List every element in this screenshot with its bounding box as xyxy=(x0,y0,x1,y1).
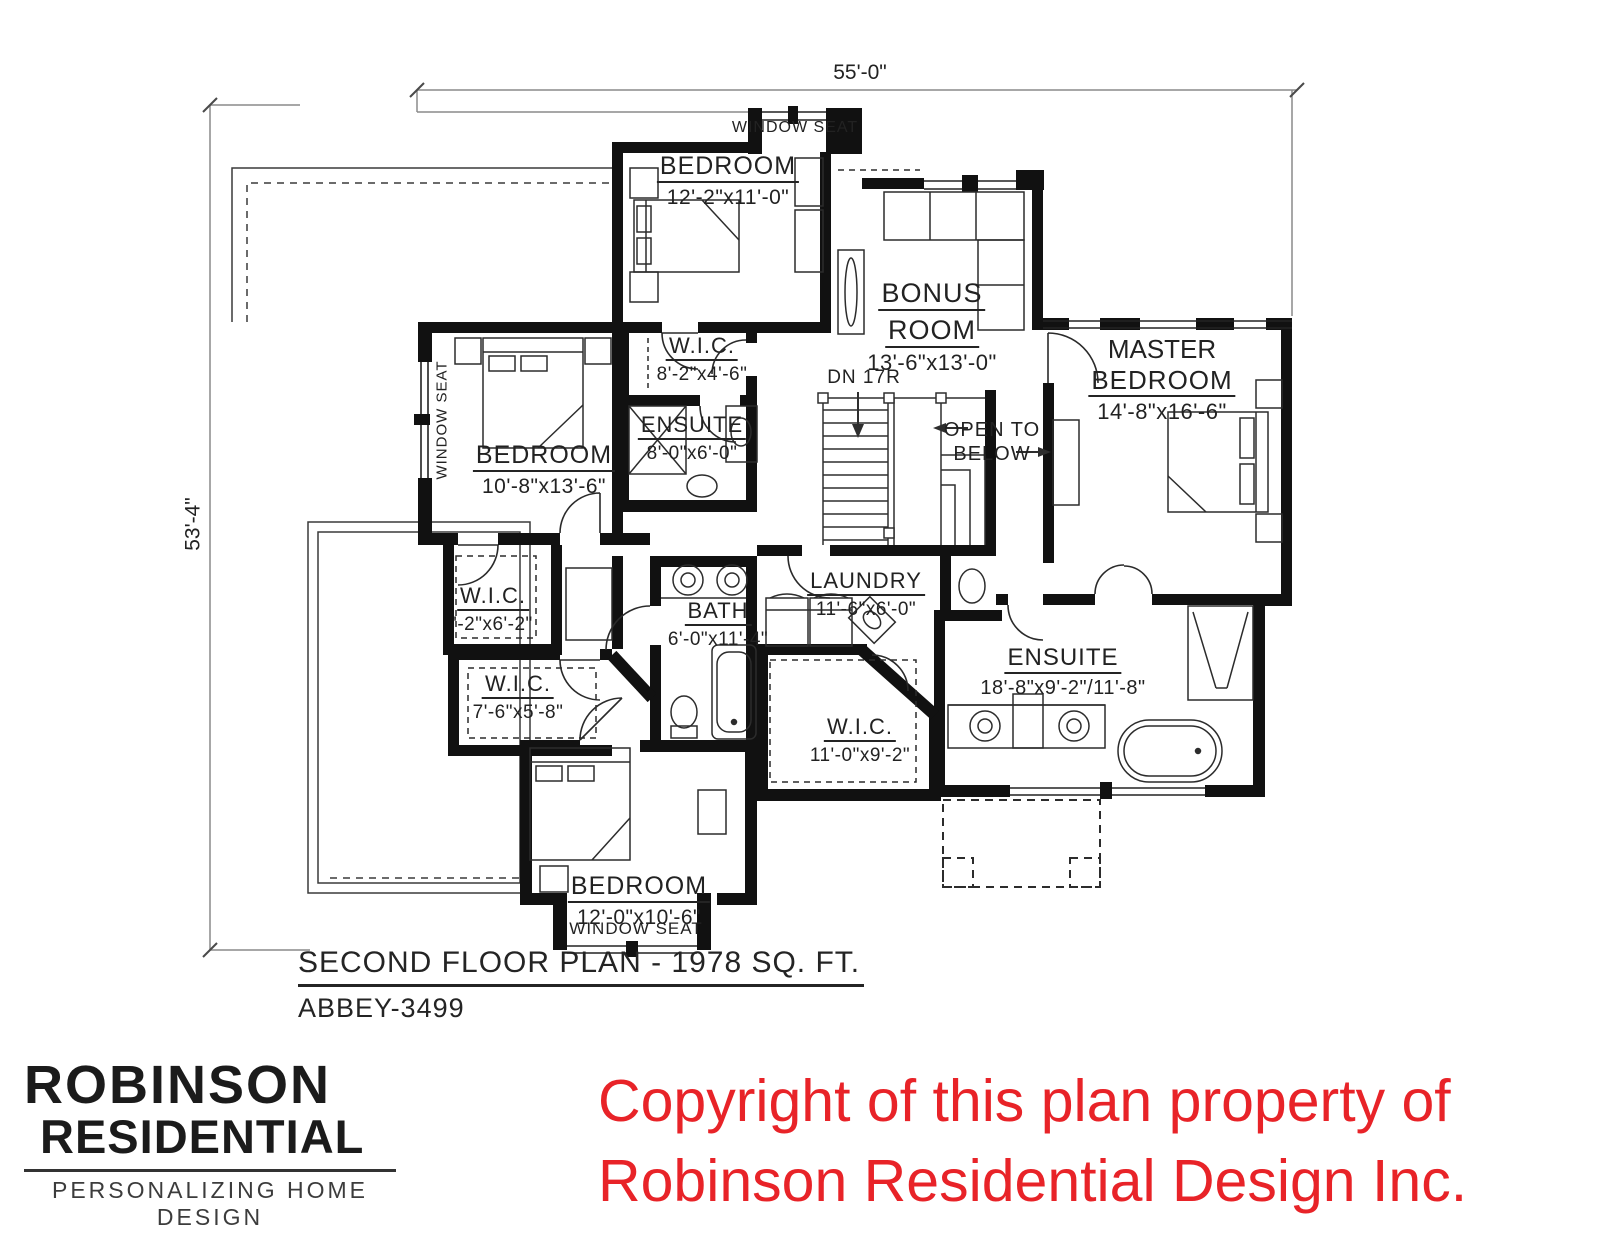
windows xyxy=(421,112,1292,953)
toilet-small-ensuite xyxy=(687,475,717,497)
bed-bottom-bedroom xyxy=(530,748,726,892)
ensuite-shower xyxy=(1188,606,1253,700)
room-label-bedroom-left: BEDROOM10'-8"x13'-6" xyxy=(473,443,615,498)
room-label-wic-upper: W.I.C.8'-2"x4'-6" xyxy=(657,335,748,384)
robinson-residential-logo: ROBINSON RESIDENTIAL PERSONALIZING HOME … xyxy=(24,1058,396,1236)
freestanding-tub xyxy=(1118,720,1222,782)
window-seat-top-label: WINDOW SEAT xyxy=(732,120,858,136)
window-seat-left-label: WINDOW SEAT xyxy=(435,360,450,479)
dimension-height-label: 53'-4" xyxy=(183,497,204,551)
logo-line1: ROBINSON xyxy=(24,1058,396,1112)
room-label-bedroom-top: BEDROOM12'-2"x11'-0" xyxy=(657,154,799,209)
stairs-dn-label: DN 17R xyxy=(827,368,901,387)
bed-left-bedroom xyxy=(455,338,611,448)
logo-line2: RESIDENTIAL xyxy=(40,1112,396,1163)
room-label-laundry: LAUNDRY11'-6"x6'-0" xyxy=(807,570,925,619)
room-label-bath: BATH6'-0"x11'-4" xyxy=(668,600,768,649)
copyright-notice: Copyright of this plan property of Robin… xyxy=(598,1062,1467,1221)
copyright-line1: Copyright of this plan property of xyxy=(598,1062,1467,1142)
title-block: SECOND FLOOR PLAN - 1978 SQ. FT. ABBEY-3… xyxy=(298,946,864,1024)
sliding-door xyxy=(838,250,864,334)
logo-tagline: PERSONALIZING HOME DESIGN xyxy=(24,1177,396,1231)
bath-vanity xyxy=(661,565,747,598)
floor-plan-drawing xyxy=(0,0,1600,1236)
room-label-wic-master: W.I.C.11'-0"x9'-2" xyxy=(810,716,910,765)
room-label-bedroom-bottom: BEDROOM12'-0"x10'-6" xyxy=(568,874,710,929)
room-label-wic-left: W.I.C.'-2"x6'-2" xyxy=(453,585,533,634)
room-label-bonus-room: BONUSROOM13'-6"x13'-0" xyxy=(867,280,997,375)
logo-divider-top xyxy=(24,1169,396,1172)
furniture xyxy=(455,158,1282,892)
walls xyxy=(418,108,1292,950)
floor-plan-sheet: 55'-0" 53'-4" WINDOW SEAT WINDOW SEAT WI… xyxy=(0,0,1600,1236)
copyright-line2: Robinson Residential Design Inc. xyxy=(598,1142,1467,1222)
open-to-below-label-line2: BELOW xyxy=(953,444,1030,464)
stairs xyxy=(818,393,985,545)
toilet-hall xyxy=(959,569,985,603)
ensuite-vanity xyxy=(948,694,1105,748)
room-label-wic-lower-left: W.I.C.7'-6"x5'-8" xyxy=(473,673,564,722)
room-label-ensuite-small: ENSUITE8'-0"x6'-0" xyxy=(638,414,746,463)
toilet-bath xyxy=(671,696,697,738)
stairs-down-arrow xyxy=(852,392,864,438)
room-label-master-bedroom: MASTERBEDROOM14'-8"x16'-6" xyxy=(1088,336,1235,423)
plan-number: ABBEY-3499 xyxy=(298,993,864,1024)
open-to-below-label-line1: OPEN TO xyxy=(944,420,1040,440)
dimension-width-label: 55'-0" xyxy=(833,62,887,83)
room-label-ensuite-master: ENSUITE18'-8"x9'-2"/11'-8" xyxy=(980,646,1145,699)
porch-outline xyxy=(943,800,1100,887)
linen-closet xyxy=(566,568,612,640)
plan-title: SECOND FLOOR PLAN - 1978 SQ. FT. xyxy=(298,946,864,987)
